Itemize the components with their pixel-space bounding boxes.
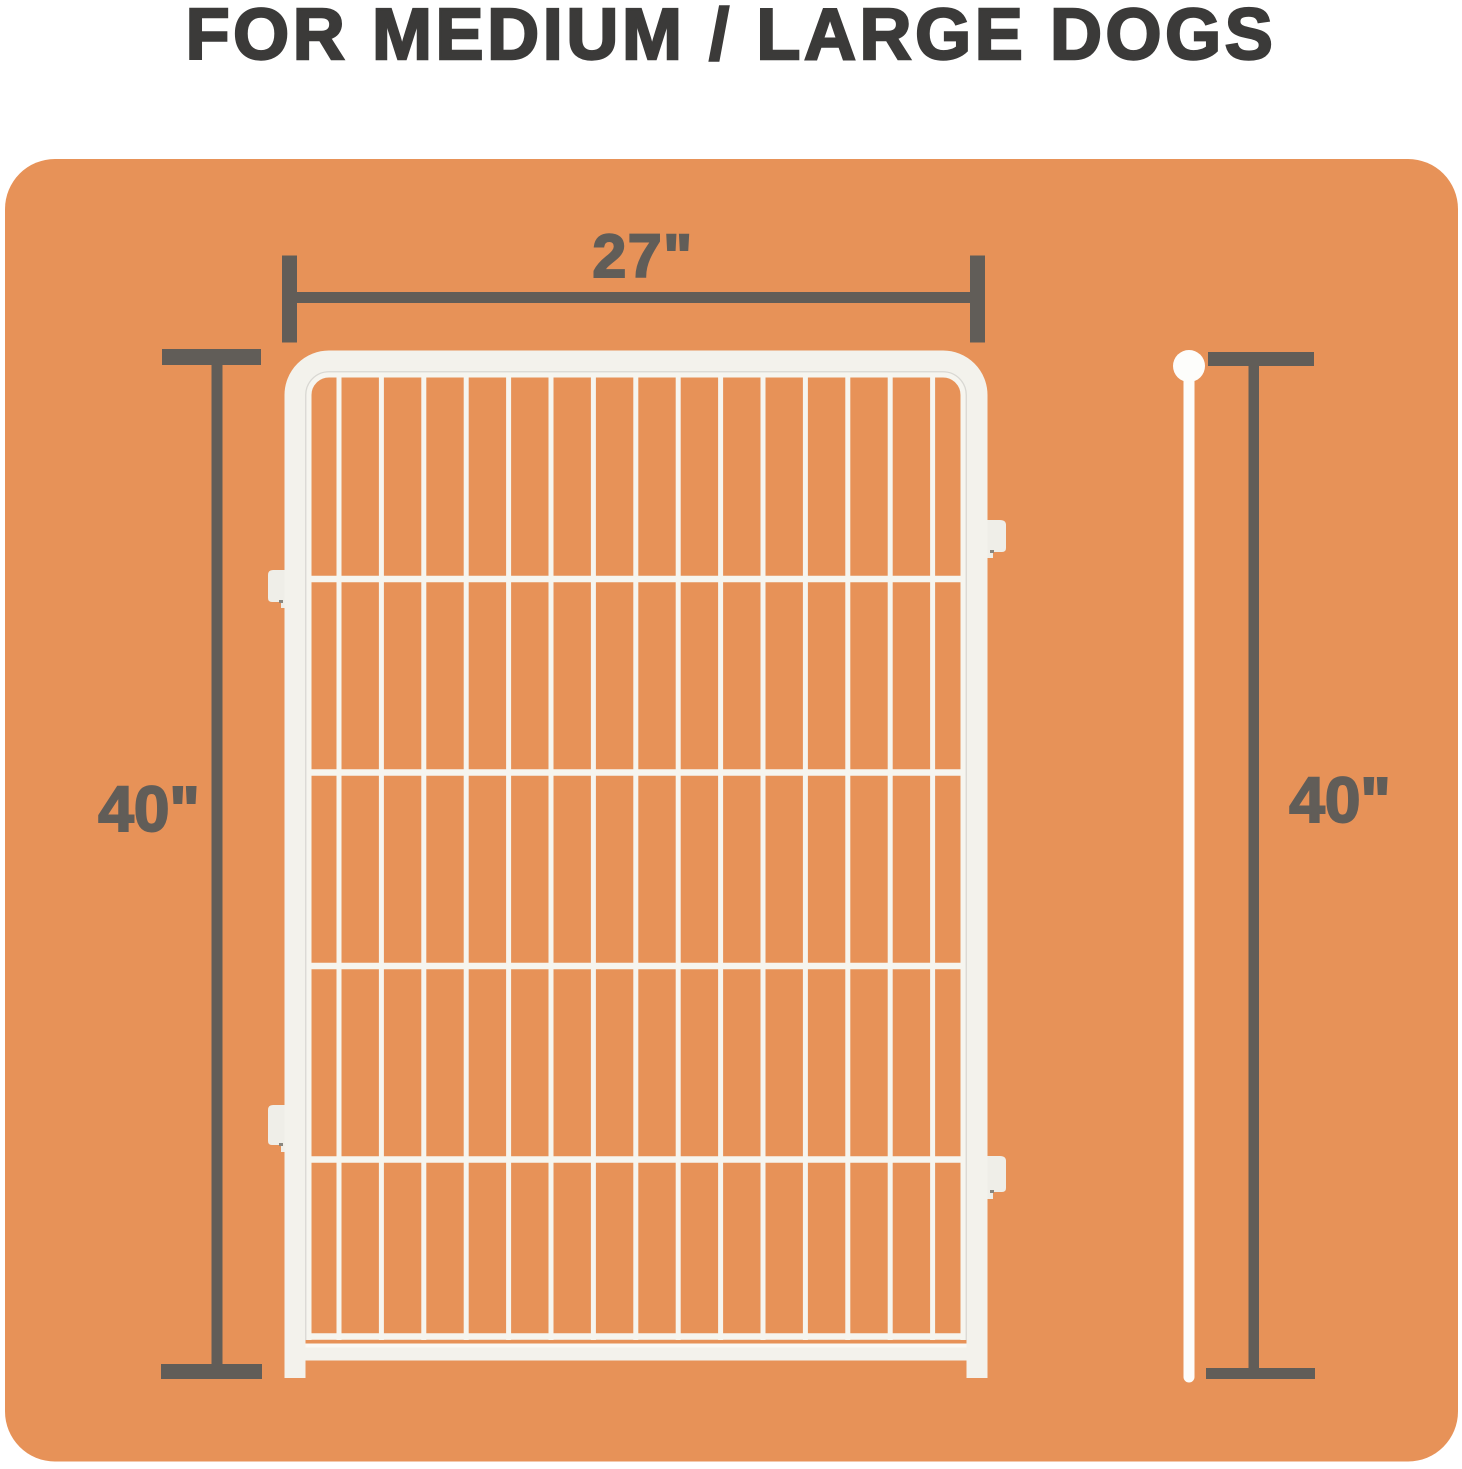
svg-text:FOR MEDIUM / LARGE DOGS: FOR MEDIUM / LARGE DOGS (186, 0, 1277, 75)
svg-text:27": 27" (592, 222, 693, 290)
svg-text:40": 40" (1289, 764, 1391, 836)
svg-text:40": 40" (98, 773, 200, 845)
